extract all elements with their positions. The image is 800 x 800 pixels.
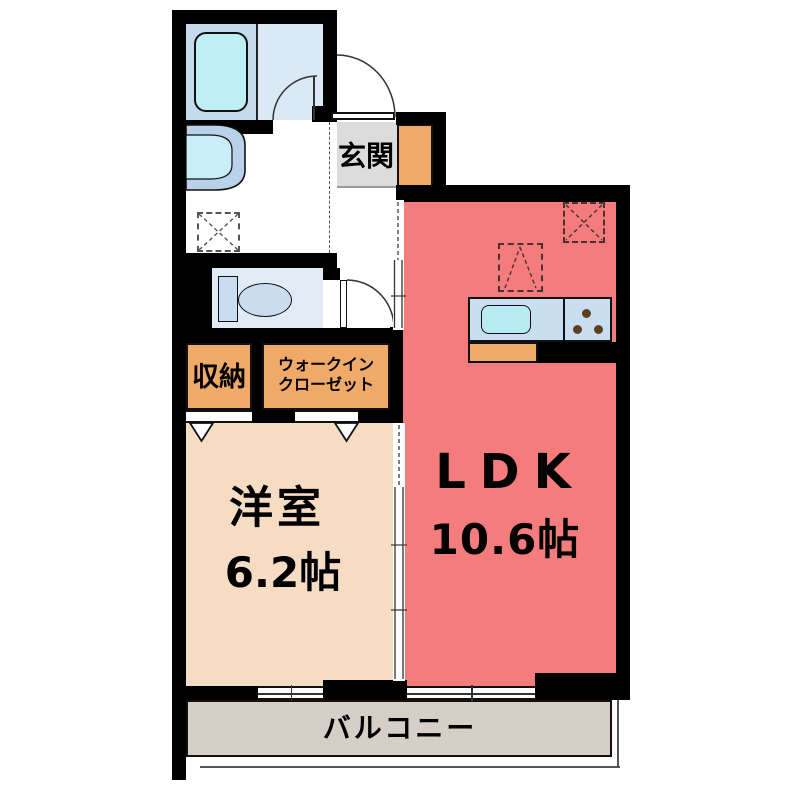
toilet-doorway-gap — [323, 280, 340, 328]
shoe-cabinet-icon — [397, 124, 433, 188]
kitchen-sink-icon — [481, 305, 531, 334]
wall-closet-gap — [252, 343, 262, 410]
western-room-area-label: 6.2帖 — [225, 547, 341, 600]
wall-top — [172, 10, 337, 24]
wall-kitchen-lower — [538, 342, 616, 363]
western-room-label: 洋室 — [229, 481, 325, 536]
appliance-space-peak-icon — [498, 243, 543, 292]
washroom-door-strip — [323, 122, 337, 253]
wall-closet-door-row-right — [358, 410, 403, 423]
washroom-door-dashed-line — [329, 122, 330, 253]
balcony-outer-line-bottom — [200, 766, 620, 768]
hall-ldk-sliding-door-icon — [391, 200, 407, 330]
bathroom-door-leaf — [313, 76, 315, 120]
washbasin-icon — [186, 123, 248, 193]
wall-bottom-right — [535, 673, 630, 700]
wall-bottom-center — [323, 680, 407, 700]
ldk-area-label: 10.6帖 — [430, 514, 581, 567]
window-tick — [471, 685, 473, 701]
balcony-label: バルコニー — [323, 711, 477, 746]
storage-door-swing-icon — [189, 422, 215, 443]
wall-right-of-shoe-cabinet — [433, 112, 446, 188]
walk-in-closet-label: ウォークイン クローゼット — [278, 355, 374, 395]
window-western-room — [258, 686, 323, 700]
wall-closet-door-row-mid — [252, 410, 295, 423]
walk-in-closet-label-line1: ウォークイン — [278, 355, 374, 375]
stove-burner-icon — [594, 325, 603, 334]
window-tick — [291, 685, 293, 701]
bathtub-icon — [194, 32, 248, 112]
wall-toilet-right-top — [323, 268, 340, 280]
toilet-bowl-icon — [238, 283, 292, 317]
stove-burner-icon — [582, 309, 591, 318]
refrigerator-space-x-icon — [563, 202, 605, 243]
wall-bottom-west-left — [186, 686, 260, 700]
balcony-outer-line-right — [617, 700, 619, 768]
wall-left — [172, 10, 186, 780]
entrance-door-arc-icon — [331, 50, 401, 120]
storage-label: 収納 — [192, 361, 246, 395]
wic-door-swing-icon — [334, 422, 360, 443]
wall-ldk-top — [396, 185, 630, 202]
wall-right — [616, 185, 630, 700]
bathroom-divider-line — [256, 24, 258, 120]
window-ldk-balcony — [407, 686, 535, 700]
floor-plan: 玄関 LDK 10.6帖 洋室 6.2帖 収納 ウォークイン クローゼット バル… — [0, 0, 800, 800]
wall-toilet-top — [186, 253, 337, 268]
kitchen-counter-divider — [563, 299, 565, 340]
stove-burner-icon — [573, 325, 582, 334]
genkan-label: 玄関 — [338, 139, 394, 174]
wall-closet-right — [390, 327, 403, 423]
kitchen-cabinet-icon — [468, 342, 538, 363]
toilet-tank-icon — [218, 276, 238, 322]
ldk-label: LDK — [435, 442, 585, 502]
wall-toilet-left — [186, 268, 212, 328]
walk-in-closet-label-line2: クローゼット — [278, 375, 374, 395]
washing-machine-x-icon — [197, 212, 240, 252]
wall-above-shoe-cabinet — [396, 112, 433, 125]
genkan-step-line — [337, 186, 397, 188]
western-ldk-sliding-door-icon — [391, 423, 407, 681]
